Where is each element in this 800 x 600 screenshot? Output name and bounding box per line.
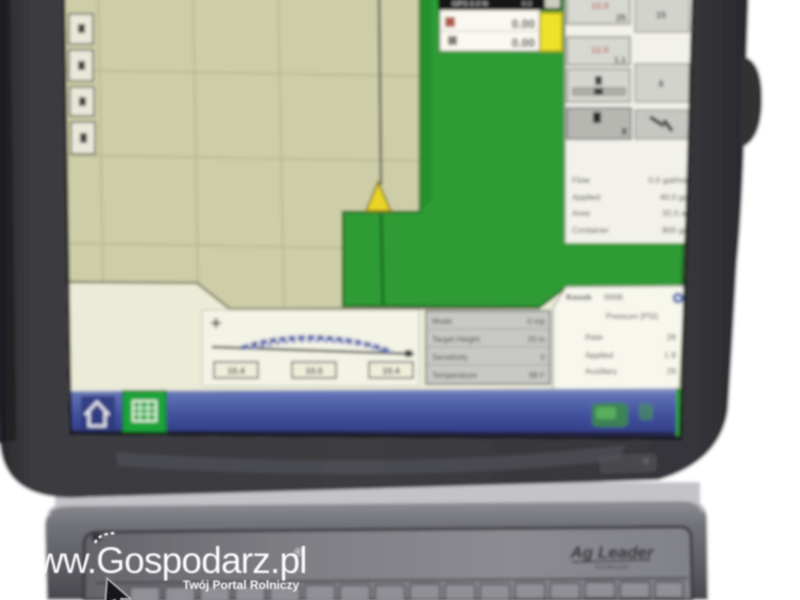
svg-text:TECHNOLOGY: TECHNOLOGY (594, 565, 630, 571)
svg-text:Applied: Applied (585, 350, 614, 360)
svg-text:1.1: 1.1 (614, 55, 626, 65)
svg-text:Sensitivity: Sensitivity (432, 353, 468, 362)
svg-text:Ag Leader: Ag Leader (569, 543, 655, 562)
svg-text:68 F: 68 F (529, 371, 545, 380)
svg-text:0.0: 0.0 (522, 1, 532, 8)
svg-text:Temperature: Temperature (432, 371, 477, 380)
svg-text:8: 8 (621, 127, 627, 138)
svg-text:www.Gospodarz.pl: www.Gospodarz.pl (10, 540, 307, 581)
svg-text:40.0 gal: 40.0 gal (660, 192, 690, 202)
svg-text:Auxiliary: Auxiliary (585, 366, 618, 376)
svg-text:12.0: 12.0 (591, 1, 609, 11)
svg-text:Target Height: Target Height (432, 335, 480, 344)
svg-text:Container: Container (572, 225, 609, 235)
svg-text:Area: Area (572, 208, 590, 218)
svg-text:10.0: 10.0 (305, 366, 323, 376)
svg-text:8: 8 (658, 79, 663, 89)
svg-text:10.4: 10.4 (382, 366, 400, 376)
svg-text:29: 29 (667, 366, 677, 376)
svg-text:Flow: Flow (572, 175, 591, 185)
svg-text:Twój Portal Rolniczy: Twój Portal Rolniczy (183, 578, 300, 592)
svg-text:Kessb: Kessb (566, 292, 592, 302)
svg-text:0 mp: 0 mp (527, 317, 545, 326)
svg-text:0: 0 (541, 353, 546, 362)
svg-text:GPS 0.0 N: GPS 0.0 N (452, 0, 488, 8)
svg-text:12.0: 12.0 (591, 45, 609, 55)
svg-text:Rate: Rate (585, 332, 603, 342)
svg-text:20 in: 20 in (528, 335, 545, 344)
svg-text:1 8: 1 8 (664, 350, 676, 360)
svg-text:0.00: 0.00 (512, 17, 536, 31)
svg-text:15: 15 (656, 10, 666, 20)
svg-text:0.00: 0.00 (512, 36, 536, 50)
svg-text:25: 25 (616, 13, 626, 23)
svg-text:0006: 0006 (604, 292, 623, 302)
svg-text:®: ® (294, 547, 302, 559)
svg-text:28: 28 (667, 332, 677, 342)
svg-text:Pressure (PSI): Pressure (PSI) (606, 312, 659, 321)
svg-text:10.4: 10.4 (227, 366, 245, 376)
svg-text:0.0 gal/min: 0.0 gal/min (648, 175, 690, 185)
svg-text:Mode: Mode (432, 317, 453, 326)
svg-text:Applied: Applied (572, 192, 601, 202)
